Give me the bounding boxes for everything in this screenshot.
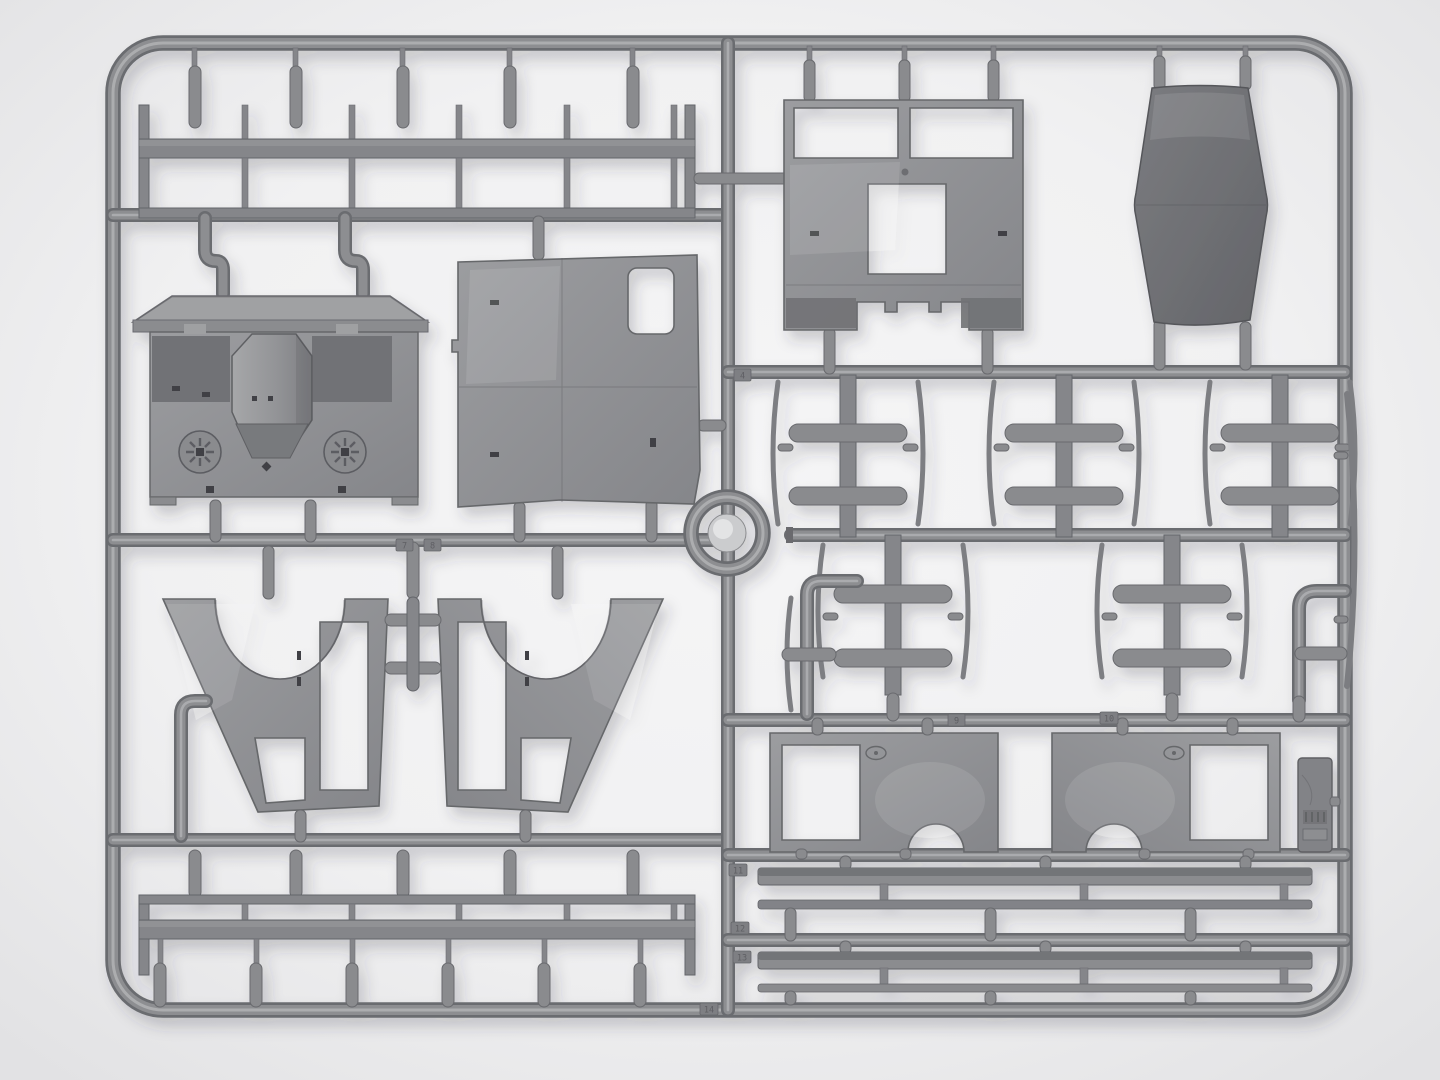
cowl-tab (336, 324, 358, 334)
part-number-tag: 8 (424, 539, 441, 552)
gate-nub (1334, 452, 1348, 459)
part-number-tag: 13 (733, 951, 751, 964)
rail-end-post (139, 105, 149, 218)
cowl-roof-visor (133, 296, 428, 322)
part-number-tag: 4 (734, 369, 751, 382)
gate-peg (305, 500, 316, 542)
svg-text:9: 9 (954, 717, 959, 727)
strip-thick-shadowside (758, 952, 1312, 960)
gate-peg (824, 328, 835, 374)
strip-thick-shadowside (758, 868, 1312, 876)
rail-thin-bar (139, 895, 695, 904)
sprue-photo-canvas: 4 7 8 9 10 11 12 13 14 (0, 0, 1440, 1080)
part-number-tag: 12 (731, 922, 749, 935)
svg-text:7: 7 (402, 542, 407, 552)
gate-peg (210, 500, 221, 542)
gate-peg (698, 420, 726, 431)
vent-rosette-right (324, 431, 366, 473)
part-number-tag: 11 (729, 864, 747, 877)
cowl-tab (184, 324, 206, 334)
svg-text:10: 10 (1104, 715, 1114, 725)
part-number-tag: 9 (948, 714, 965, 727)
rail-lower-bar (139, 208, 695, 218)
photo-model-kit-sprue: 4 7 8 9 10 11 12 13 14 (0, 0, 1440, 1080)
svg-text:4: 4 (740, 372, 745, 382)
cowl-roof-edge (133, 320, 428, 332)
gate-peg (514, 502, 525, 542)
part-number-tag: 7 (396, 539, 413, 552)
part-number-tag: 10 (1100, 712, 1118, 725)
svg-text:13: 13 (737, 954, 747, 964)
runner-cut-end (786, 527, 793, 543)
svg-text:8: 8 (430, 542, 435, 552)
strip-thin (758, 984, 1312, 992)
svg-text:12: 12 (735, 925, 745, 935)
rail-end-post (685, 105, 695, 218)
cowl-side-panel-left (152, 336, 230, 402)
gate-nub (1334, 616, 1348, 623)
cab-door-panel (452, 216, 726, 542)
gate-peg (646, 500, 657, 542)
gate-peg (694, 173, 790, 184)
cowl-side-panel-right (312, 336, 392, 402)
svg-text:11: 11 (733, 867, 743, 877)
vent-rosette-left (179, 431, 221, 473)
ring-highlight (713, 519, 733, 539)
gate-peg (533, 216, 544, 260)
gate-peg (982, 328, 993, 374)
strip-thin (758, 900, 1312, 909)
svg-text:14: 14 (704, 1006, 714, 1016)
part-number-tag: 14 (700, 1003, 718, 1016)
